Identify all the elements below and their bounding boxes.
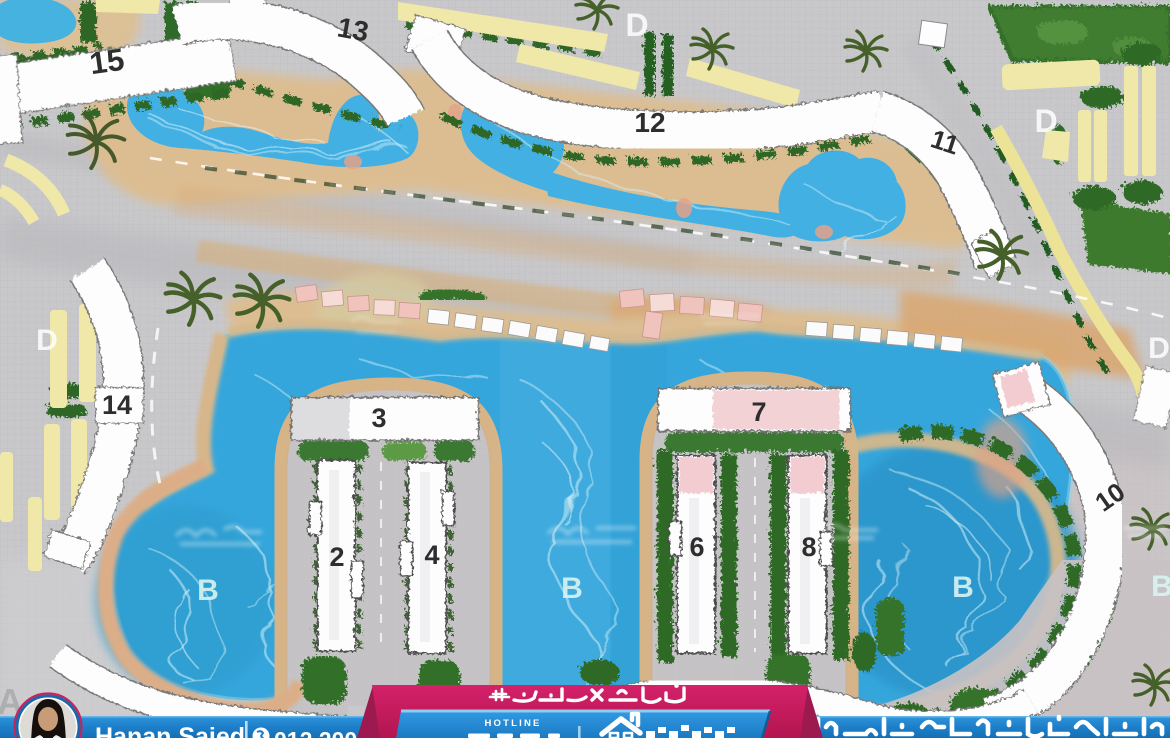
svg-text:4: 4 xyxy=(424,540,439,570)
svg-text:3: 3 xyxy=(371,403,386,433)
svg-text:14: 14 xyxy=(102,390,132,420)
svg-text:12: 12 xyxy=(634,107,665,138)
svg-text:HOTLINE: HOTLINE xyxy=(484,718,541,729)
svg-text:2: 2 xyxy=(329,542,344,572)
svg-text:B: B xyxy=(1151,570,1170,603)
svg-text:B: B xyxy=(197,574,219,607)
svg-text:D: D xyxy=(1148,332,1170,365)
svg-text:Hanan Saied: Hanan Saied xyxy=(95,723,245,738)
svg-text:D: D xyxy=(1034,103,1057,139)
svg-text:B: B xyxy=(952,571,974,604)
svg-text:8: 8 xyxy=(801,532,816,562)
svg-text:15: 15 xyxy=(87,42,126,81)
svg-text:7: 7 xyxy=(751,397,766,427)
svg-text:13: 13 xyxy=(335,12,371,48)
svg-text:D: D xyxy=(625,7,648,43)
svg-text:B: B xyxy=(561,572,583,605)
svg-text:6: 6 xyxy=(689,532,704,562)
svg-text:D: D xyxy=(36,324,58,357)
